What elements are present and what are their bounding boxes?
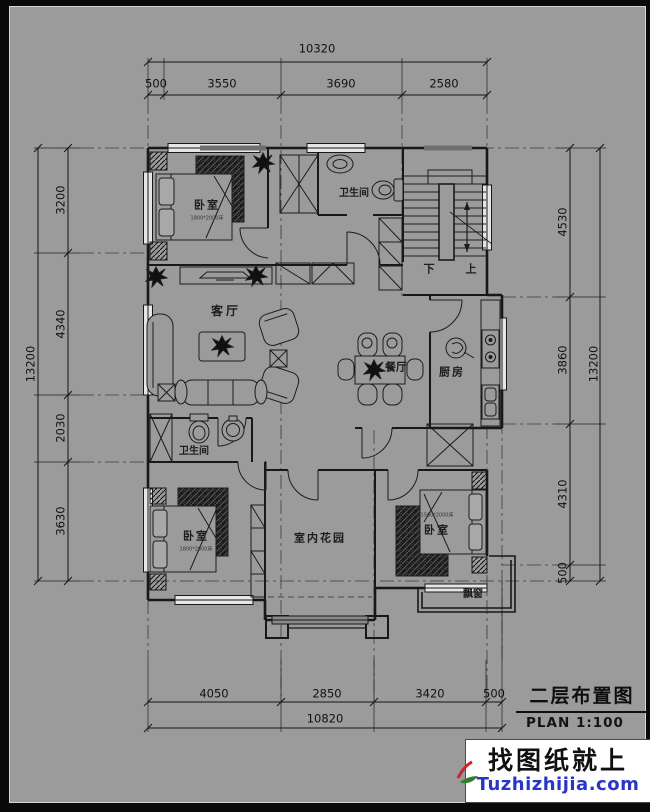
closet-by-stairs [379,218,402,290]
watermark-box: 找图纸就上 Tuzhizhijia.com [465,739,650,803]
stove [482,330,499,368]
door-bedroom-top-left [240,228,268,258]
dim-top-seg: 3550 [207,78,236,90]
dim-right-seg: 500 [557,562,569,584]
armchair [257,306,301,348]
dim-right-total: 13200 [588,346,600,383]
door-kitchen [430,300,462,332]
window-shade [424,146,472,151]
wok [446,338,474,358]
dim-bottom-total: 10820 [307,713,344,725]
dim-left-seg: 3200 [55,185,67,214]
bedroom-top-left-furniture [156,153,274,240]
bed-size-label: 1800*2000床 [180,548,213,553]
watermark-slogan: 找图纸就上 [488,747,628,775]
room-label-bay-window: 飘窗 [463,590,483,600]
sofa [175,380,267,405]
stairs-up-label: 上 [466,264,477,275]
shoe-cabinets [276,263,354,284]
door-bedroom-bottom-left [238,462,266,490]
stairs-down-label: 下 [424,264,435,275]
dim-top-seg: 2580 [429,78,458,90]
room-label-indoor-garden: 室内花园 [294,533,346,544]
kitchen-fixtures [446,300,500,426]
watermark-site-link[interactable]: Tuzhizhijia.com [477,775,640,795]
dim-bottom-seg: 2850 [312,688,341,700]
plan-title: 二层布置图 [516,681,648,708]
dim-right-seg: 3860 [557,345,569,374]
plant-icon [246,266,267,286]
door-balcony [362,428,392,458]
extension-lines [34,58,606,732]
room-label-bedroom-top-left: 卧室 [194,200,220,211]
sink [222,416,244,441]
shower-unit [150,414,172,462]
door-hall [347,232,380,265]
room-label-bedroom-bottom-left: 卧室 [183,531,209,542]
room-label-dining: 餐厅 [385,362,407,373]
door-bedroom-bottom-right [388,470,418,500]
dim-right-seg: 4530 [557,207,569,236]
staircase [404,170,492,260]
toilet [189,414,209,443]
room-label-bathroom-mid: 卫生间 [179,447,209,457]
dim-left-total: 13200 [25,346,37,383]
dining-furniture [338,333,423,405]
bed [420,490,486,554]
drawing-sheet: 10320 500 3550 3690 2580 4050 2850 3420 … [0,0,650,812]
dim-left-seg: 2030 [55,413,67,442]
dim-left-seg: 3630 [55,506,67,535]
dim-top-seg: 500 [145,78,167,90]
room-label-kitchen: 厨房 [439,367,465,378]
wardrobe-top [280,155,318,213]
wardrobe-bedroom-bottom-left [251,505,265,597]
toilet [372,179,403,201]
living-room-furniture [146,266,301,406]
dim-top-seg: 3690 [326,78,355,90]
room-label-living: 客厅 [211,305,241,317]
shaft-cabinet [427,424,473,466]
plan-scale: PLAN 1:100 [516,715,648,731]
door-garden [288,470,318,500]
dim-bottom-seg: 4050 [199,688,228,700]
bed-size-label: 1800*2000床 [191,217,224,222]
plant-icon [253,153,274,173]
dim-top-total: 10320 [299,43,336,55]
title-rule [516,711,648,713]
dim-bottom-seg: 3420 [415,688,444,700]
room-label-bathroom-top: 卫生间 [339,189,369,199]
title-block: 二层布置图 PLAN 1:100 [516,681,648,731]
watermark-logo-icon [456,756,482,786]
dim-bottom-seg: 500 [483,688,505,700]
room-label-bedroom-bottom-right: 卧室 [424,525,450,536]
dim-right-seg: 4310 [557,479,569,508]
window-shade [200,146,266,151]
dim-left-seg: 4340 [55,309,67,338]
kitchen-sink [482,385,499,419]
bed-size-label: 1500*2000床 [421,514,454,519]
